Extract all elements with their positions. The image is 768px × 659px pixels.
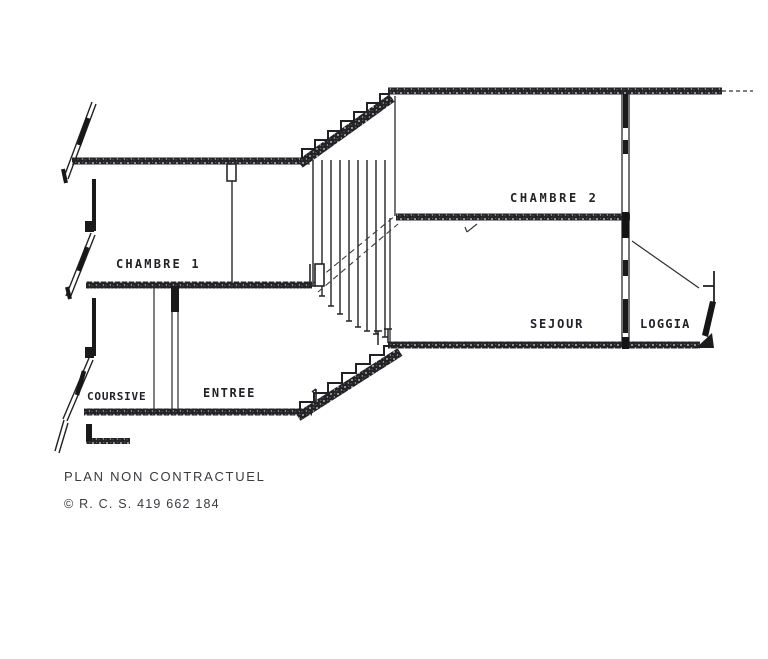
entree-wall-head [171, 286, 179, 312]
floor-plan-page: CHAMBRE 1 CHAMBRE 2 SEJOUR LOGGIA COURSI… [0, 0, 768, 659]
loggia-slanted-jamb [702, 301, 716, 337]
room-label-coursive: COURSIVE [87, 390, 146, 403]
room-label-entree: ENTREE [203, 386, 256, 400]
rcs-registration-text: © R. C. S. 419 662 184 [64, 497, 220, 511]
stairs-lower-steps [300, 346, 398, 411]
loggia-structure [632, 241, 716, 348]
room-label-loggia: LOGGIA [640, 317, 691, 331]
lower-stair-underside [298, 352, 400, 417]
plan-disclaimer-text: PLAN NON CONTRACTUEL [64, 469, 266, 484]
pen-tick-mark [465, 224, 477, 232]
interior-partitions [154, 96, 395, 410]
room-label-chambre2: CHAMBRE 2 [510, 191, 598, 205]
loggia-sloped-ceiling-line [632, 241, 699, 288]
room-label-chambre1: CHAMBRE 1 [116, 257, 201, 271]
stair-railing [310, 160, 398, 337]
right-window-wall [622, 90, 629, 349]
upper-stair-underside [300, 98, 392, 164]
chambre1-partition-head [227, 164, 236, 181]
room-label-sejour: SEJOUR [530, 317, 584, 331]
